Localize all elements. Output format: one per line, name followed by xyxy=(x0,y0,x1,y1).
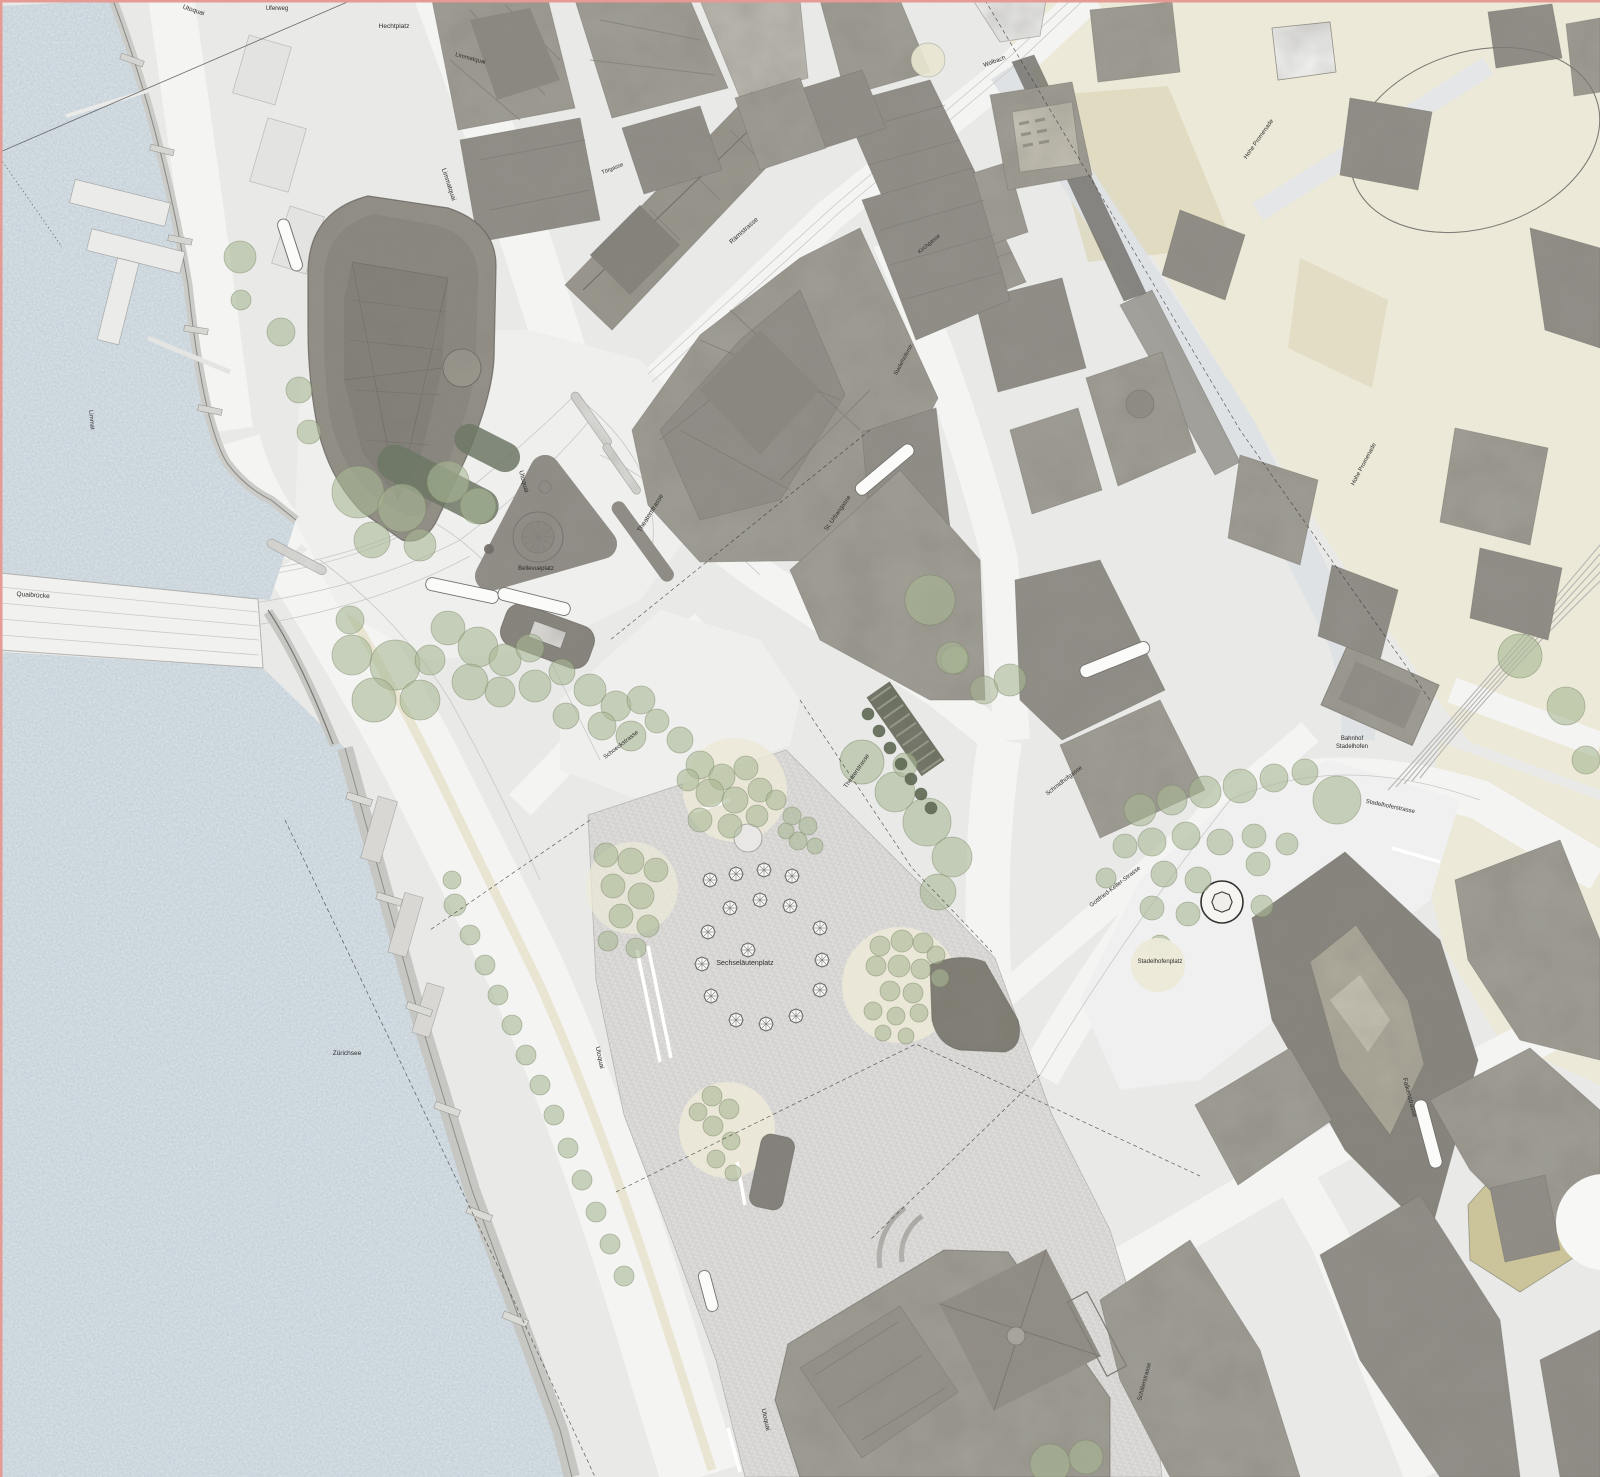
svg-text:Stadelhofenplatz: Stadelhofenplatz xyxy=(1138,959,1183,965)
svg-text:Zürichsee: Zürichsee xyxy=(333,1050,362,1057)
svg-text:Bellevueplatz: Bellevueplatz xyxy=(518,566,554,572)
svg-text:Sechseläutenplatz: Sechseläutenplatz xyxy=(716,960,774,967)
svg-text:Stadelhofen: Stadelhofen xyxy=(1336,744,1368,750)
svg-text:Uferweg: Uferweg xyxy=(266,6,288,12)
svg-text:Bahnhof: Bahnhof xyxy=(1341,736,1364,742)
svg-text:Hechtplatz: Hechtplatz xyxy=(379,23,410,30)
